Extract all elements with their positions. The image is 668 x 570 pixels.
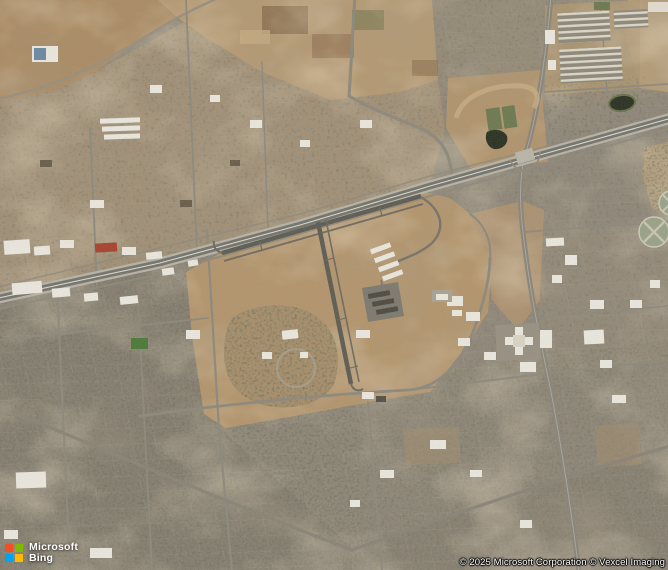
microsoft-square-red [5, 544, 13, 552]
microsoft-square-green [15, 544, 23, 552]
copyright-attribution: © 2025 Microsoft Corporation © Vexcel Im… [460, 558, 665, 568]
satellite-imagery [0, 0, 668, 570]
image-grain [0, 0, 668, 570]
logo-wordmark: Microsoft Bing [29, 542, 78, 564]
bing-maps-satellite-view[interactable]: Microsoft Bing © 2025 Microsoft Corporat… [0, 0, 668, 570]
logo-line-bing: Bing [29, 553, 78, 564]
microsoft-bing-logo[interactable]: Microsoft Bing [5, 542, 78, 564]
microsoft-logo-icon [5, 544, 23, 562]
microsoft-square-yellow [15, 554, 23, 562]
microsoft-square-blue [5, 554, 13, 562]
